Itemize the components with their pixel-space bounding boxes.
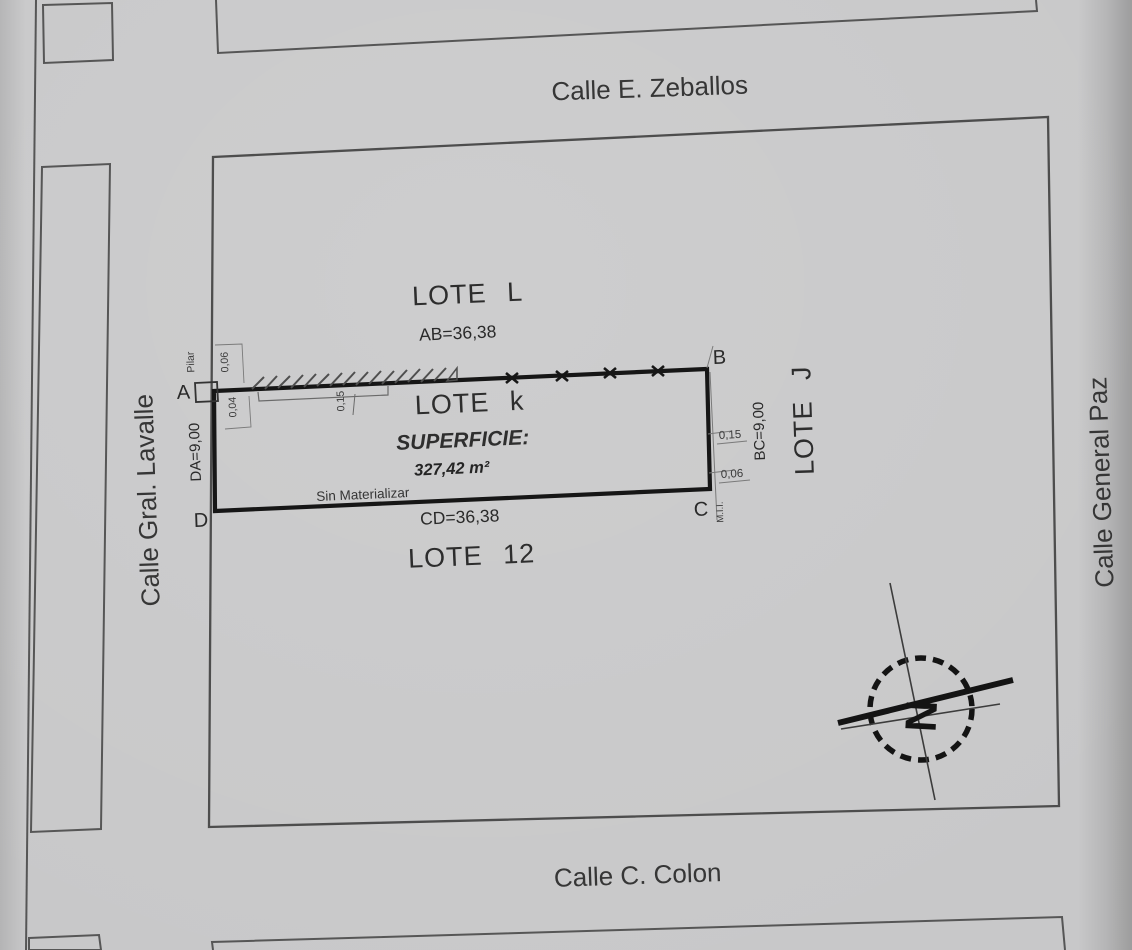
dimension-da: DA=9,00 bbox=[186, 422, 205, 481]
offset-b-label: 0,15 bbox=[719, 429, 742, 442]
offset-c-label: 0,06 bbox=[721, 468, 744, 481]
wall-thickness-label: 0,15 bbox=[335, 391, 348, 412]
paper-left-edge-shadow bbox=[0, 0, 26, 950]
offset-a-bottom-label: 0,04 bbox=[227, 397, 240, 418]
street-label-bottom: Calle C. Colon bbox=[553, 857, 722, 893]
survey-plan-scan: N Calle E. Zeballos Calle C. Colon Calle… bbox=[0, 0, 1132, 950]
lot-label-subject: LOTE k bbox=[414, 386, 525, 421]
dimension-cd: CD=36,38 bbox=[420, 505, 500, 528]
corner-b: B bbox=[712, 347, 726, 369]
corner-a: A bbox=[176, 382, 191, 404]
lot-label-east: LOTE J bbox=[786, 365, 820, 476]
plan-drawing: N Calle E. Zeballos Calle C. Colon Calle… bbox=[0, 0, 1132, 950]
boundary-mark-label: M.I.I. bbox=[715, 501, 727, 522]
north-letter: N bbox=[895, 699, 946, 733]
pillar-label: Pilar bbox=[185, 351, 198, 373]
lot-label-south: LOTE 12 bbox=[407, 538, 535, 574]
corner-c: C bbox=[693, 499, 708, 521]
offset-a-top-label: 0,06 bbox=[219, 352, 232, 373]
dimension-ab: AB=36,38 bbox=[419, 321, 497, 344]
lot-label-north: LOTE L bbox=[411, 277, 523, 312]
area-value: 327,42 m² bbox=[414, 458, 490, 479]
dimension-bc: BC=9,00 bbox=[750, 401, 769, 460]
corner-d: D bbox=[193, 510, 208, 532]
